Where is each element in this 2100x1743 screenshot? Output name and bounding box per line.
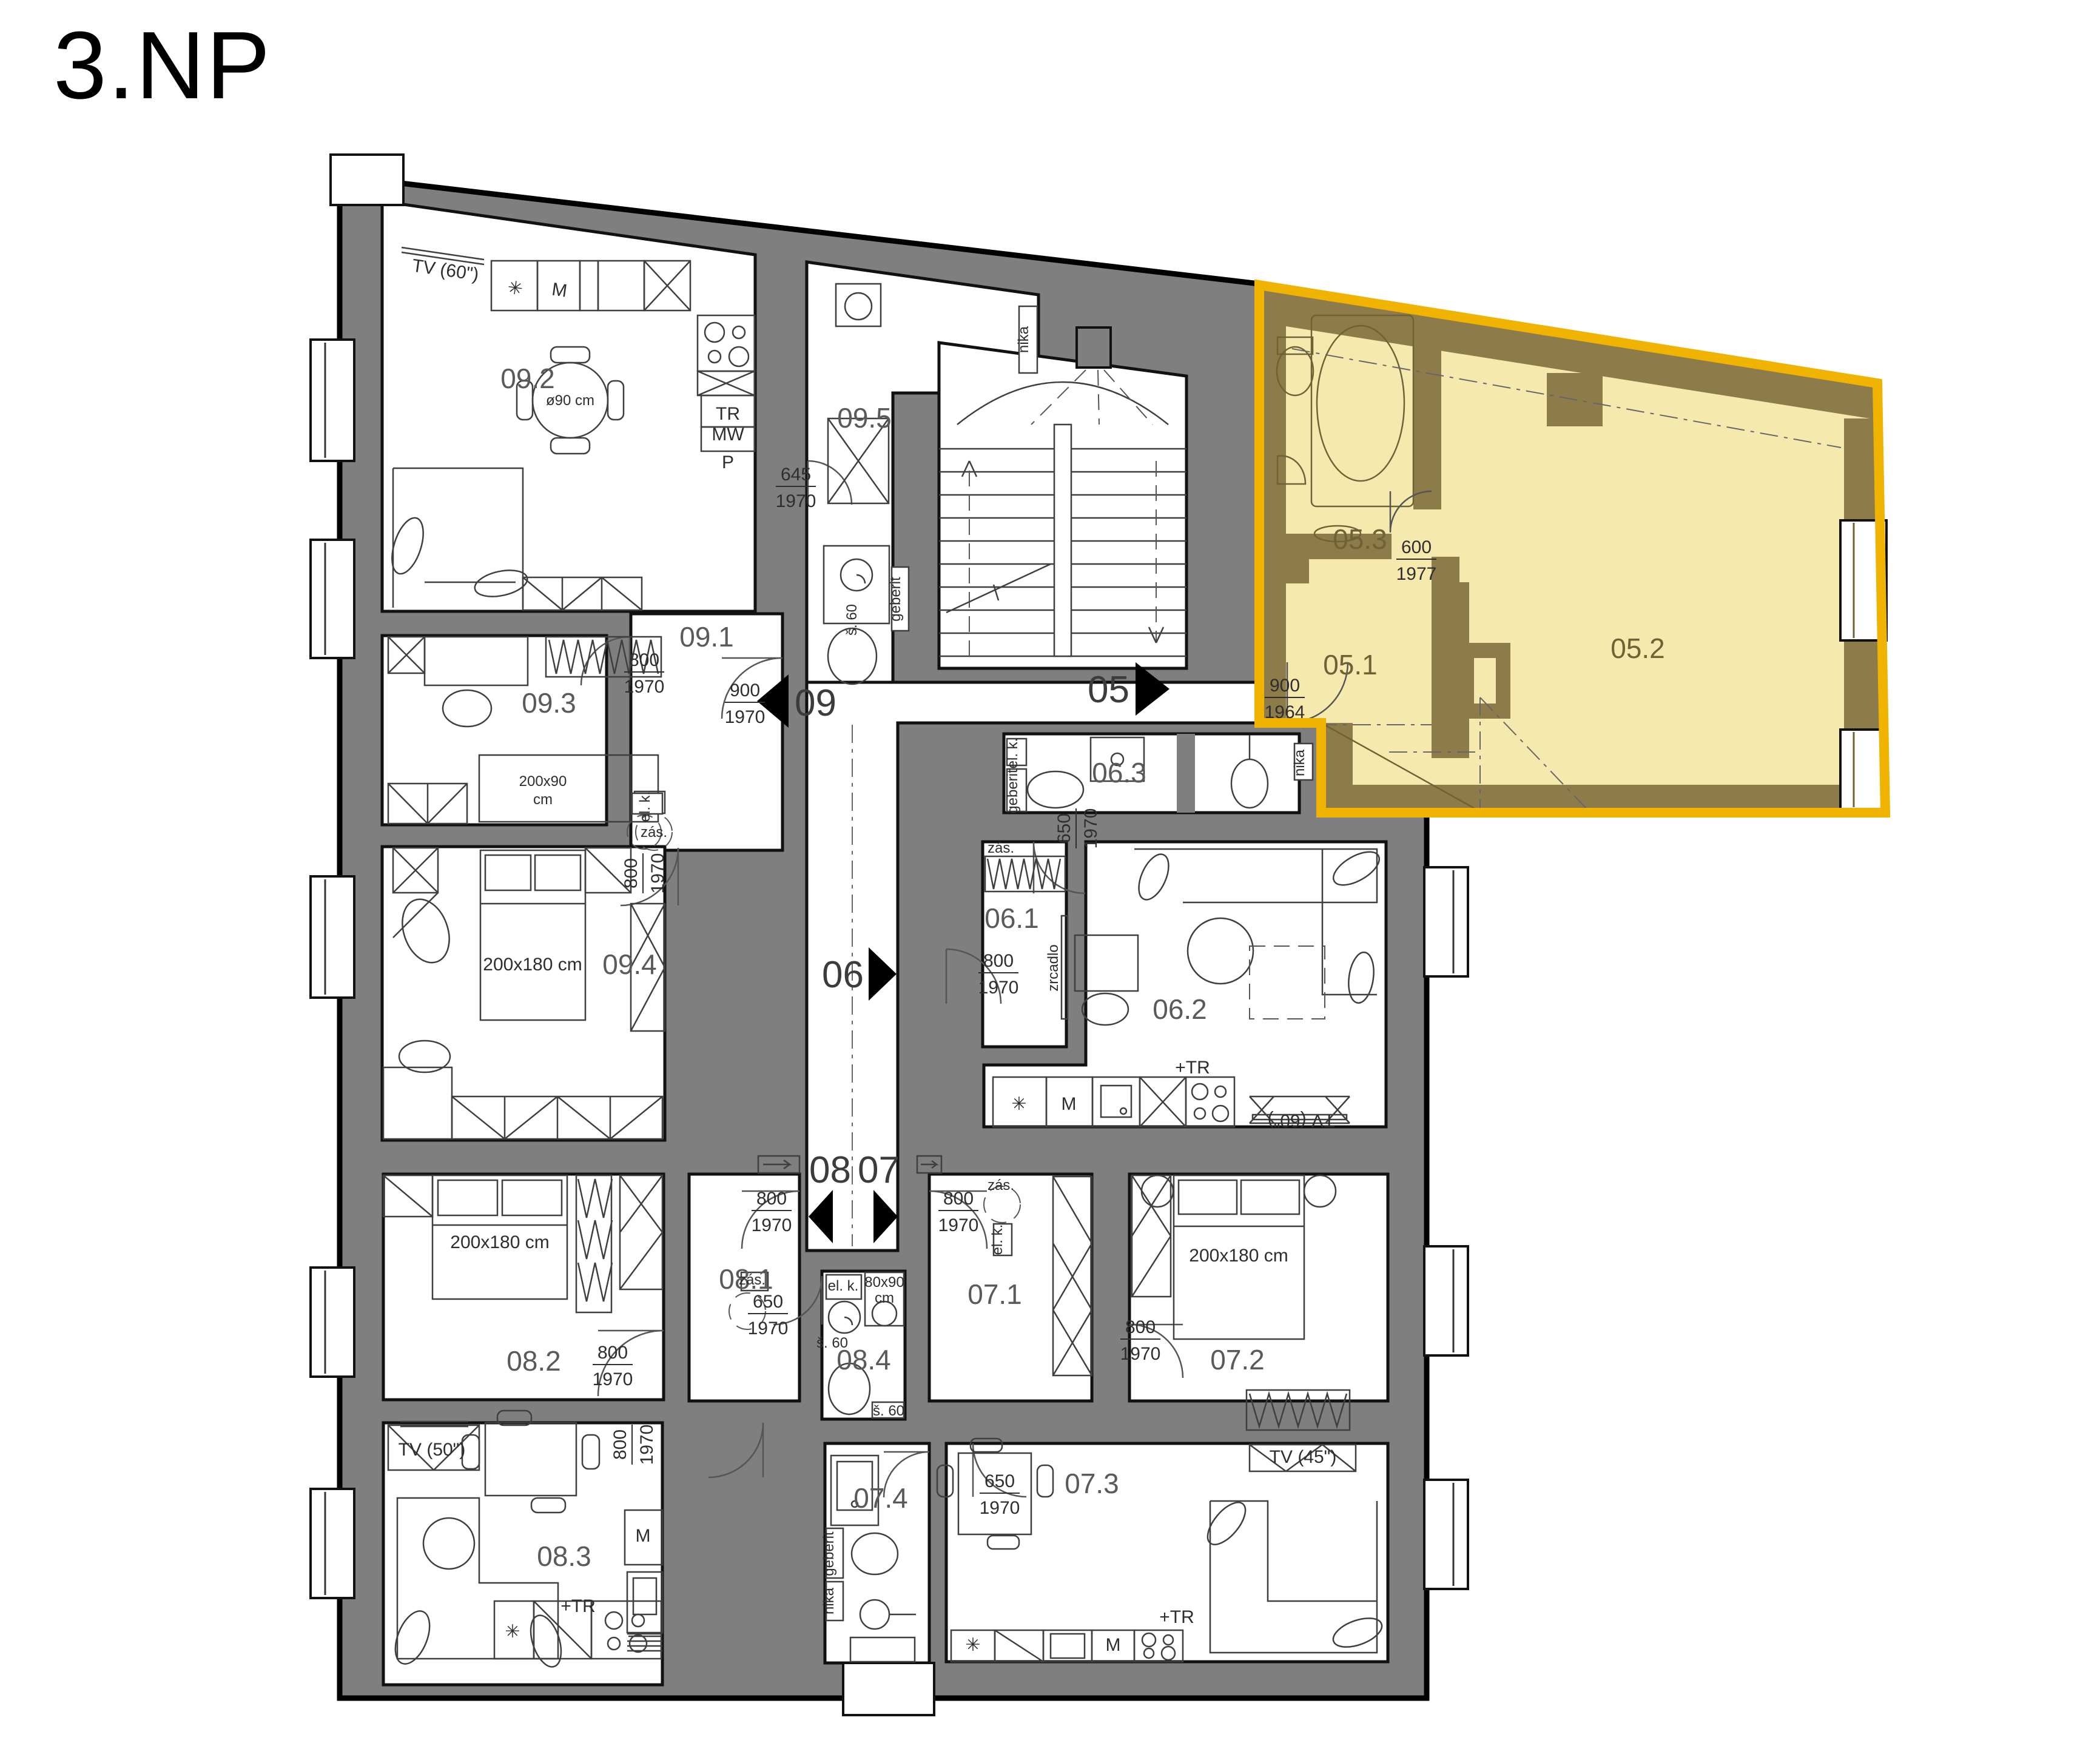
- label-shower-2: cm: [875, 1290, 894, 1306]
- svg-text:800: 800: [597, 1343, 628, 1363]
- label-s60-095: š. 60: [844, 604, 860, 636]
- label-06-3: 06.3: [1092, 757, 1146, 788]
- svg-text:800: 800: [983, 951, 1014, 971]
- label-mw: MW: [712, 425, 744, 445]
- label-zas-061: zás.: [988, 840, 1014, 856]
- svg-text:800: 800: [756, 1189, 787, 1209]
- marker-07: 07: [858, 1149, 900, 1191]
- star-073: ✳: [965, 1635, 980, 1655]
- label-08-3: 08.3: [537, 1540, 591, 1572]
- svg-text:645: 645: [781, 465, 811, 485]
- room-06-3: [1004, 734, 1299, 813]
- label-07-2: 07.2: [1210, 1344, 1265, 1375]
- label-tv60-062: TV (60"): [1268, 1110, 1335, 1130]
- star-083: ✳: [505, 1622, 520, 1642]
- label-geberit-095: geberit: [887, 577, 904, 622]
- svg-text:900: 900: [1270, 676, 1300, 696]
- label-m-092: M: [551, 280, 568, 301]
- label-09-1: 09.1: [679, 621, 734, 653]
- label-shower-1: 80x90: [864, 1274, 904, 1291]
- svg-text:1970: 1970: [1120, 1344, 1161, 1364]
- label-bed-094: 200x180 cm: [483, 955, 582, 975]
- svg-text:1977: 1977: [1396, 564, 1437, 584]
- label-06-1: 06.1: [984, 902, 1039, 934]
- label-s60-084: š. 60: [816, 1335, 848, 1351]
- svg-text:800: 800: [621, 858, 641, 888]
- svg-text:800: 800: [943, 1189, 974, 1209]
- label-p: P: [722, 452, 734, 472]
- star-092: ✳: [506, 278, 524, 300]
- label-07-3: 07.3: [1065, 1468, 1119, 1499]
- label-07-4: 07.4: [853, 1482, 908, 1514]
- label-09-3: 09.3: [522, 687, 576, 719]
- label-05-2: 05.2: [1610, 633, 1665, 664]
- label-nika-063: nika: [1291, 749, 1308, 776]
- svg-text:600: 600: [1401, 537, 1432, 557]
- svg-text:1970: 1970: [978, 978, 1019, 998]
- svg-text:1970: 1970: [752, 1215, 792, 1235]
- label-zas-091: zás.: [641, 824, 667, 841]
- label-plustr-073: +TR: [1159, 1607, 1194, 1627]
- label-bed-072: 200x180 cm: [1189, 1246, 1288, 1266]
- svg-text:1970: 1970: [593, 1369, 633, 1389]
- svg-text:1970: 1970: [748, 1318, 789, 1338]
- svg-text:1970: 1970: [637, 1425, 657, 1465]
- label-05-3: 05.3: [1333, 523, 1387, 555]
- svg-text:1970: 1970: [938, 1215, 979, 1235]
- svg-text:1970: 1970: [648, 853, 668, 894]
- label-elk-084: el. k.: [828, 1278, 859, 1294]
- label-geberit-074: geberit: [821, 1531, 837, 1576]
- label-m-083: M: [636, 1526, 651, 1546]
- label-nika-074: nika: [821, 1587, 837, 1614]
- svg-text:1970: 1970: [980, 1498, 1020, 1518]
- label-05-1: 05.1: [1323, 649, 1378, 680]
- label-08-2: 08.2: [506, 1345, 561, 1377]
- label-m-062: M: [1062, 1094, 1077, 1114]
- svg-text:1970: 1970: [776, 491, 816, 511]
- label-zas-071: zás.: [988, 1177, 1014, 1194]
- marker-09: 09: [795, 682, 836, 724]
- marker-05: 05: [1088, 669, 1129, 711]
- svg-text:650: 650: [984, 1471, 1015, 1491]
- label-elk-091: el. k.: [637, 791, 653, 822]
- label-elk-063: el. k.: [1005, 738, 1021, 769]
- svg-text:1970: 1970: [624, 677, 665, 697]
- svg-text:1964: 1964: [1265, 702, 1305, 722]
- floor-plan: 09 05 06 08 07 09.2 09.5 09.1 09.3 09.4 …: [0, 0, 2100, 1743]
- label-round-table: ø90 cm: [546, 392, 594, 409]
- svg-text:900: 900: [730, 680, 760, 700]
- label-plustr-083: +TR: [560, 1596, 596, 1616]
- svg-text:650: 650: [753, 1292, 783, 1312]
- label-s60-084b: š. 60: [873, 1403, 904, 1419]
- svg-text:1970: 1970: [725, 707, 766, 727]
- label-nika-095: nika: [1015, 326, 1032, 353]
- svg-text:650: 650: [1054, 813, 1074, 844]
- svg-text:800: 800: [629, 650, 659, 670]
- label-07-1: 07.1: [968, 1278, 1022, 1310]
- label-09-4: 09.4: [602, 949, 657, 980]
- label-zrcadlo: zrcadlo: [1045, 944, 1062, 991]
- label-bed-082: 200x180 cm: [450, 1232, 549, 1252]
- label-09-5: 09.5: [837, 402, 892, 434]
- label-plustr-062: +TR: [1175, 1058, 1210, 1078]
- label-tv45-073: TV (45"): [1270, 1447, 1337, 1467]
- label-elk-071: el. k.: [989, 1224, 1006, 1255]
- svg-text:800: 800: [610, 1429, 630, 1460]
- label-06-2: 06.2: [1153, 993, 1207, 1025]
- marker-06: 06: [822, 954, 864, 996]
- label-bed-small-1: 200x90: [519, 773, 567, 790]
- label-zas-081: zás.: [739, 1272, 766, 1288]
- label-09-2: 09.2: [500, 363, 555, 394]
- label-bed-small-2: cm: [533, 791, 553, 808]
- svg-text:1970: 1970: [1081, 808, 1101, 849]
- star-062: ✳: [1011, 1094, 1026, 1114]
- room-06-1: [983, 842, 1066, 1047]
- svg-text:800: 800: [1125, 1317, 1156, 1337]
- marker-08: 08: [809, 1149, 851, 1191]
- label-tv50-083: TV (50"): [399, 1440, 466, 1460]
- label-tr: TR: [716, 404, 740, 424]
- label-geberit-063: geberit: [1005, 769, 1021, 814]
- label-m-073: M: [1106, 1635, 1121, 1655]
